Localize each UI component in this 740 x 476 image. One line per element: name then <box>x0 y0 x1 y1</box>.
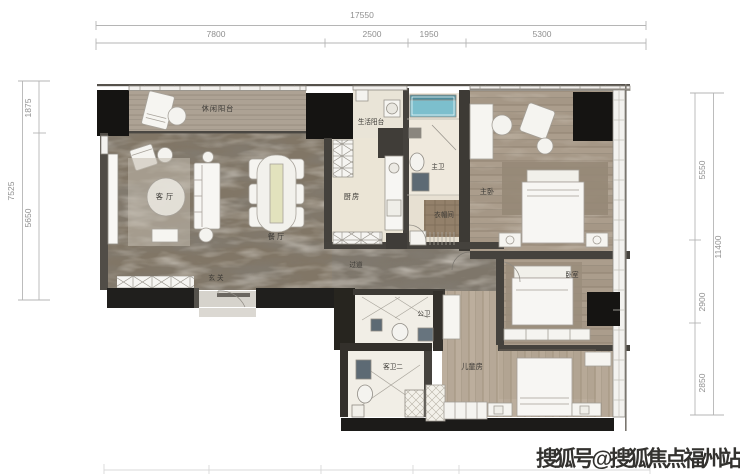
svg-text:搜狐号@搜狐焦点福州站: 搜狐号@搜狐焦点福州站 <box>536 446 740 471</box>
svg-text:5300: 5300 <box>533 29 552 39</box>
svg-text:主卫: 主卫 <box>431 162 445 171</box>
svg-text:1950: 1950 <box>420 29 439 39</box>
svg-text:生活阳台: 生活阳台 <box>358 117 385 126</box>
svg-text:餐厅: 餐厅 <box>268 232 286 241</box>
svg-text:厨房: 厨房 <box>344 192 360 201</box>
svg-text:主卧: 主卧 <box>480 187 494 196</box>
svg-text:5550: 5550 <box>697 160 707 179</box>
svg-text:客卫二: 客卫二 <box>383 362 403 371</box>
svg-text:2500: 2500 <box>363 29 382 39</box>
svg-text:休闲阳台: 休闲阳台 <box>202 104 235 113</box>
svg-text:2900: 2900 <box>697 292 707 311</box>
svg-text:衣帽间: 衣帽间 <box>434 210 454 219</box>
svg-text:过道: 过道 <box>349 260 363 269</box>
svg-text:儿童房: 儿童房 <box>461 362 483 371</box>
svg-text:1875: 1875 <box>23 98 33 117</box>
svg-text:7800: 7800 <box>207 29 226 39</box>
svg-text:7525: 7525 <box>6 181 16 200</box>
svg-text:2850: 2850 <box>697 373 707 392</box>
svg-text:17550: 17550 <box>350 10 374 20</box>
svg-text:5650: 5650 <box>23 208 33 227</box>
svg-text:玄关: 玄关 <box>208 273 225 282</box>
svg-text:11400: 11400 <box>713 235 723 258</box>
svg-text:卧室: 卧室 <box>565 270 579 279</box>
svg-text:公卫: 公卫 <box>417 310 431 318</box>
svg-text:客厅: 客厅 <box>156 192 176 201</box>
